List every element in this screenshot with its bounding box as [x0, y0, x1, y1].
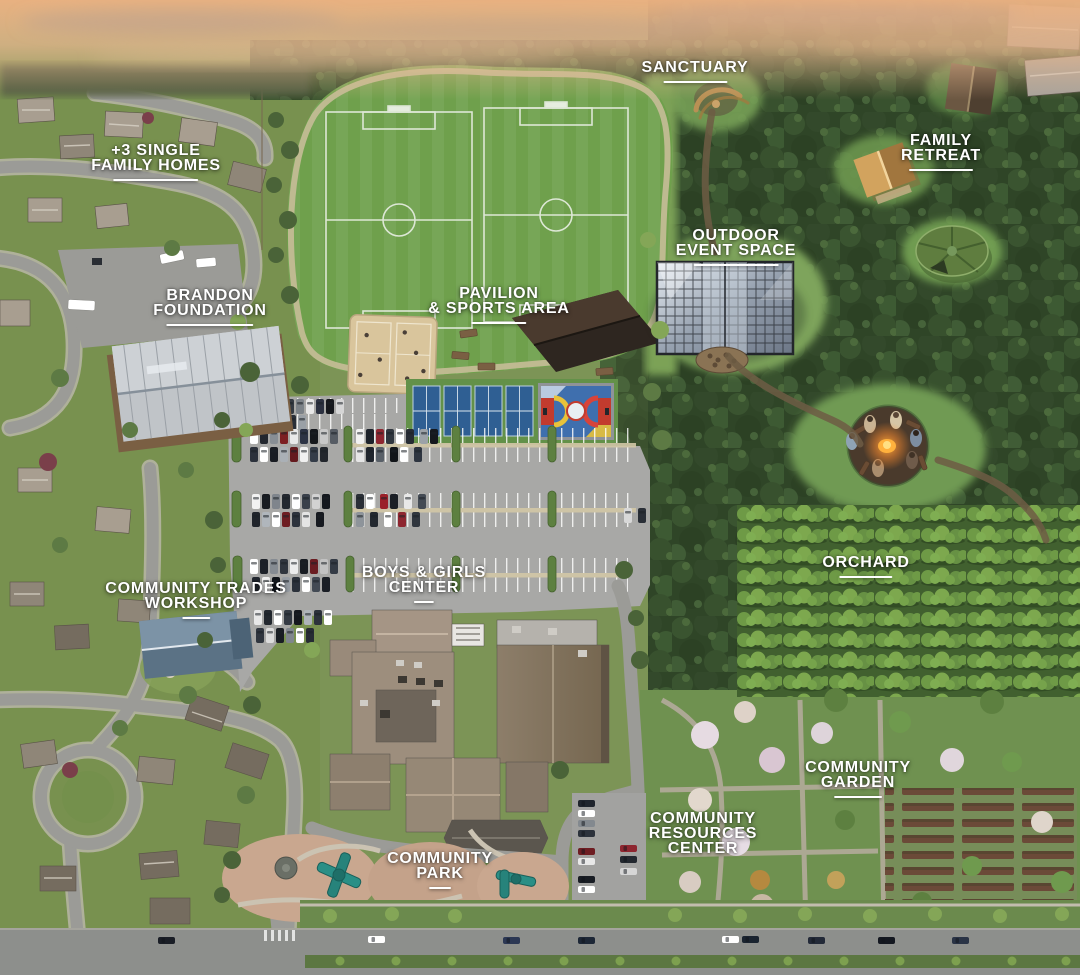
aerial-site-map: +3 SINGLE FAMILY HOMES SANCTUARY FAMILY … [0, 0, 1080, 975]
label-line: BRANDON [153, 288, 266, 303]
label-orchard: ORCHARD [822, 555, 909, 578]
label-single-family-homes: +3 SINGLE FAMILY HOMES [91, 143, 221, 181]
label-line: COMMUNITY [805, 760, 911, 775]
label-community-resources-center: COMMUNITY RESOURCES CENTER [649, 811, 758, 856]
label-line: & SPORTS AREA [428, 301, 569, 316]
label-line: WORKSHOP [105, 596, 286, 611]
label-underline [663, 81, 727, 83]
label-family-retreat: FAMILY RETREAT [901, 133, 981, 171]
label-underline [694, 264, 779, 266]
label-underline [167, 324, 254, 326]
sunset-sky [0, 0, 1080, 100]
label-boys-girls-center: BOYS & GIRLS CENTER [362, 565, 486, 603]
label-line: CENTER [649, 841, 758, 856]
label-underline [182, 617, 210, 619]
label-brandon-foundation: BRANDON FOUNDATION [153, 288, 266, 326]
label-line: BOYS & GIRLS [362, 565, 486, 580]
label-underline [471, 322, 526, 324]
label-line: ORCHARD [822, 555, 909, 570]
label-line: RETREAT [901, 148, 981, 163]
label-community-trades-workshop: COMMUNITY TRADES WORKSHOP [105, 581, 286, 619]
label-underline [909, 169, 973, 171]
label-underline [414, 601, 434, 603]
label-line: FAMILY HOMES [91, 158, 221, 173]
label-line: OUTDOOR [676, 228, 797, 243]
label-line: CENTER [362, 580, 486, 595]
label-line: COMMUNITY [387, 851, 493, 866]
orchard-area [737, 505, 1080, 697]
label-pavilion-sports-area: PAVILION & SPORTS AREA [428, 286, 569, 324]
label-line: COMMUNITY [649, 811, 758, 826]
label-line: FAMILY [901, 133, 981, 148]
label-underline [114, 179, 199, 181]
label-sanctuary: SANCTUARY [641, 60, 748, 83]
label-line: GARDEN [805, 775, 911, 790]
label-line: PAVILION [428, 286, 569, 301]
label-line: SANCTUARY [641, 60, 748, 75]
label-outdoor-event-space: OUTDOOR EVENT SPACE [676, 228, 797, 266]
label-line: EVENT SPACE [676, 243, 797, 258]
label-line: COMMUNITY TRADES [105, 581, 286, 596]
label-community-garden: COMMUNITY GARDEN [805, 760, 911, 798]
label-line: FOUNDATION [153, 303, 266, 318]
label-community-park: COMMUNITY PARK [387, 851, 493, 889]
label-line: PARK [387, 866, 493, 881]
label-line: RESOURCES [649, 826, 758, 841]
label-underline [834, 796, 882, 798]
label-underline [429, 887, 451, 889]
label-line: +3 SINGLE [91, 143, 221, 158]
label-underline [840, 576, 893, 578]
